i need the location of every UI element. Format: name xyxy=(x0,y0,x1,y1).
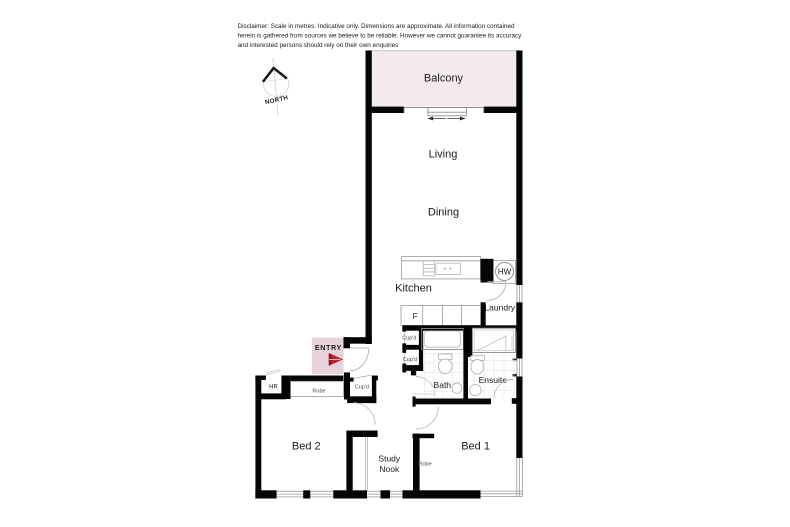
svg-text:Laundry: Laundry xyxy=(484,303,515,313)
svg-text:Bath: Bath xyxy=(434,380,452,390)
svg-text:HR: HR xyxy=(269,385,278,391)
svg-text:Cup'd: Cup'd xyxy=(402,336,416,342)
svg-text:Robe: Robe xyxy=(312,388,325,394)
svg-text:Kitchen: Kitchen xyxy=(395,283,432,295)
svg-text:Dining: Dining xyxy=(428,207,459,219)
svg-text:Living: Living xyxy=(429,149,458,161)
svg-text:HW: HW xyxy=(498,267,512,276)
svg-text:Nook: Nook xyxy=(379,464,400,474)
svg-text:herein is gathered from source: herein is gathered from sources we belie… xyxy=(238,33,523,40)
svg-text:Study: Study xyxy=(378,454,400,464)
svg-text:Cup'd: Cup'd xyxy=(403,357,417,363)
svg-text:ENTRY: ENTRY xyxy=(315,343,342,352)
svg-text:Bed 1: Bed 1 xyxy=(461,440,490,452)
svg-text:F: F xyxy=(413,312,418,321)
svg-text:Robe: Robe xyxy=(419,462,432,468)
svg-text:and interested persons should: and interested persons should rely on th… xyxy=(238,42,399,49)
svg-text:Balcony: Balcony xyxy=(424,73,464,85)
svg-text:Disclaimer: Scale in metres. I: Disclaimer: Scale in metres. Indicative … xyxy=(238,23,515,30)
svg-text:Bed 2: Bed 2 xyxy=(292,441,321,453)
svg-text:Cup'd: Cup'd xyxy=(355,385,369,391)
svg-text:Ensuite: Ensuite xyxy=(479,375,508,385)
